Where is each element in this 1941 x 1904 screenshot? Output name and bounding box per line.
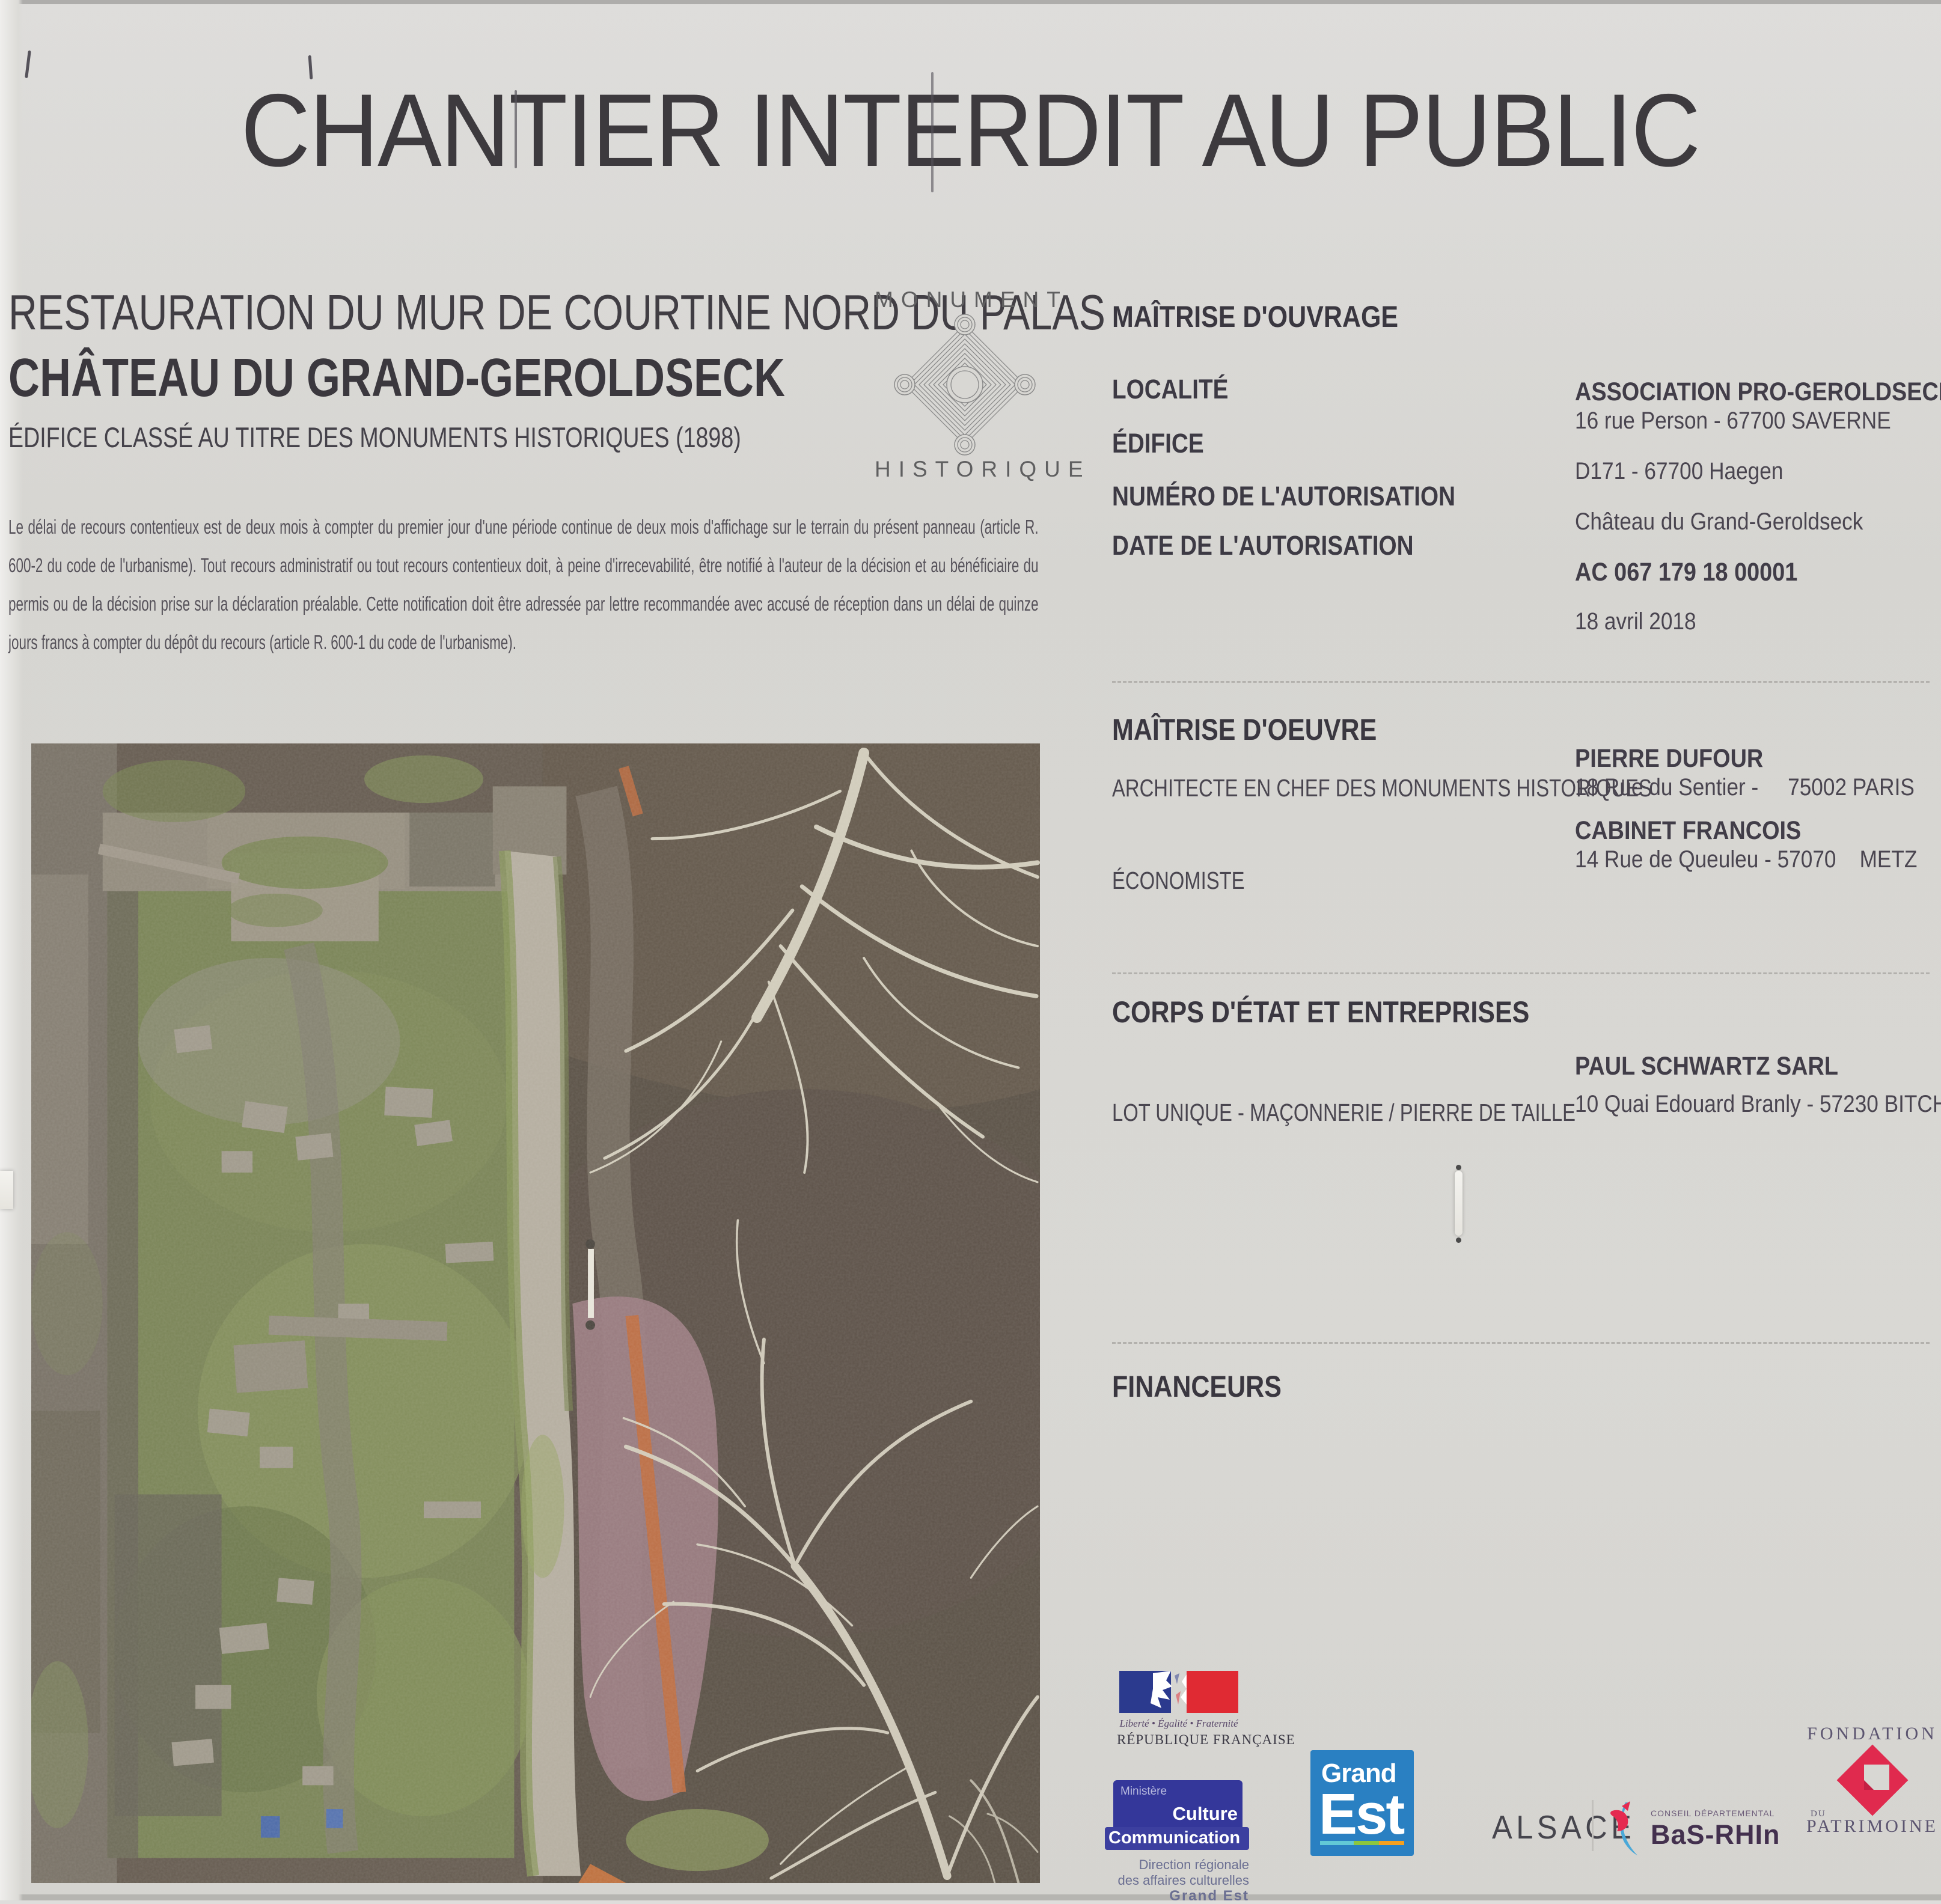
fondation-line2: DUPATRIMOINE	[1803, 1816, 1941, 1837]
aerial-photo-castle-ruins	[31, 743, 1040, 1883]
ministere-label: Ministère	[1120, 1785, 1167, 1798]
rf-motto: Liberté • Égalité • Fraternité	[1117, 1718, 1241, 1730]
red-diamond-icon	[1827, 1744, 1918, 1816]
label-edifice: ÉDIFICE	[1112, 428, 1204, 459]
section-heading-corps-etat: CORPS D'ÉTAT ET ENTREPRISES	[1112, 995, 1529, 1030]
value-architecte-name: PIERRE DUFOUR	[1575, 744, 1763, 773]
drac-line2: des affaires culturelles	[1118, 1873, 1250, 1888]
fondation-patrimoine-logo: FONDATION DUPATRIMOINE	[1803, 1724, 1941, 1837]
grand-est-logo: Grand Est	[1310, 1750, 1414, 1856]
value-org-address: 16 rue Person - 67700 SAVERNE	[1575, 407, 1891, 435]
panel-bottom-edge	[0, 1894, 1941, 1900]
labyrinth-diamond-icon	[890, 314, 1040, 456]
ministere-box: Ministère Culture	[1113, 1780, 1243, 1827]
label-economiste: ÉCONOMISTE	[1112, 867, 1245, 895]
value-localite: D171 - 67700 Haegen	[1575, 458, 1783, 485]
screw-mark	[0, 1171, 13, 1209]
monument-historique-badge: MONUMENT HISTORIQUE	[875, 287, 1055, 482]
project-castle-name: CHÂTEAU DU GRAND-GEROLDSECK	[8, 347, 785, 409]
grand-est-line2: Est	[1319, 1781, 1403, 1848]
drac-text: Direction régionale des affaires culture…	[1113, 1857, 1249, 1904]
legal-notice-text: Le délai de recours contentieux est de d…	[8, 508, 1039, 662]
fondation-line1: FONDATION	[1803, 1724, 1941, 1744]
label-numero-autorisation: NUMÉRO DE L'AUTORISATION	[1112, 481, 1455, 512]
label-date-autorisation: DATE DE L'AUTORISATION	[1112, 530, 1414, 561]
value-numero: AC 067 179 18 00001	[1575, 558, 1797, 587]
value-economiste-name: CABINET FRANCOIS	[1575, 816, 1801, 846]
bas-rhin-name: BaS-RHIn	[1651, 1819, 1781, 1851]
badge-top-label: MONUMENT	[875, 287, 1055, 313]
badge-bottom-label: HISTORIQUE	[875, 457, 1055, 482]
value-entreprise-address: 10 Quai Edouard Branly - 57230 BITCHE	[1575, 1091, 1941, 1118]
drac-line3: Grand Est	[1169, 1888, 1249, 1904]
value-date: 18 avril 2018	[1575, 608, 1696, 635]
section-separator	[1112, 1342, 1930, 1344]
label-lot-unique: LOT UNIQUE - MAÇONNERIE / PIERRE DE TAIL…	[1112, 1099, 1576, 1127]
value-economiste-address: 14 Rue de Queuleu - 57070 METZ	[1575, 846, 1917, 873]
section-heading-financeurs: FINANCEURS	[1112, 1369, 1282, 1404]
section-heading-maitrise-oeuvre: MAÎTRISE D'OEUVRE	[1112, 712, 1377, 747]
value-org-name: ASSOCIATION PRO-GEROLDSECK	[1575, 377, 1941, 407]
communication-bar: Communication	[1105, 1827, 1249, 1850]
screw-mark	[1455, 1171, 1463, 1236]
label-architecte: ARCHITECTE EN CHEF DES MONUMENTS HISTORI…	[1112, 774, 1652, 802]
value-entreprise-name: PAUL SCHWARTZ SARL	[1575, 1052, 1838, 1081]
communication-label: Communication	[1108, 1828, 1240, 1848]
grand-est-stripes-icon	[1320, 1841, 1404, 1845]
bas-rhin-heart-swoosh-icon	[1604, 1800, 1646, 1857]
french-flag-marianne-icon	[1119, 1671, 1238, 1713]
drac-line1: Direction régionale	[1139, 1857, 1249, 1872]
rf-name: RÉPUBLIQUE FRANÇAISE	[1117, 1732, 1241, 1748]
panel-top-edge	[0, 0, 1941, 4]
page-title: CHANTIER INTERDIT AU PUBLIC	[188, 71, 1753, 190]
fondation-patrimoine-word: PATRIMOINE	[1806, 1816, 1938, 1836]
screw-mark	[515, 90, 517, 168]
value-architecte-address: 18 Rue du Sentier - 75002 PARIS	[1575, 774, 1915, 801]
section-separator	[1112, 972, 1930, 974]
project-classification: ÉDIFICE CLASSÉ AU TITRE DES MONUMENTS HI…	[8, 421, 741, 454]
fondation-du: DU	[1811, 1809, 1826, 1819]
section-heading-maitrise-ouvrage: MAÎTRISE D'OUVRAGE	[1112, 299, 1398, 334]
republique-francaise-logo: Liberté • Égalité • Fraternité RÉPUBLIQU…	[1117, 1671, 1241, 1748]
culture-label: Culture	[1173, 1803, 1238, 1825]
screw-mark	[25, 50, 31, 78]
bas-rhin-sup-label: CONSEIL DÉPARTEMENTAL	[1651, 1808, 1781, 1818]
label-localite: LOCALITÉ	[1112, 374, 1228, 405]
section-separator	[1112, 681, 1930, 683]
ministere-culture-logo: Ministère Culture Communication Directio…	[1113, 1780, 1243, 1904]
value-edifice: Château du Grand-Geroldseck	[1575, 508, 1863, 535]
screw-mark	[931, 72, 934, 192]
